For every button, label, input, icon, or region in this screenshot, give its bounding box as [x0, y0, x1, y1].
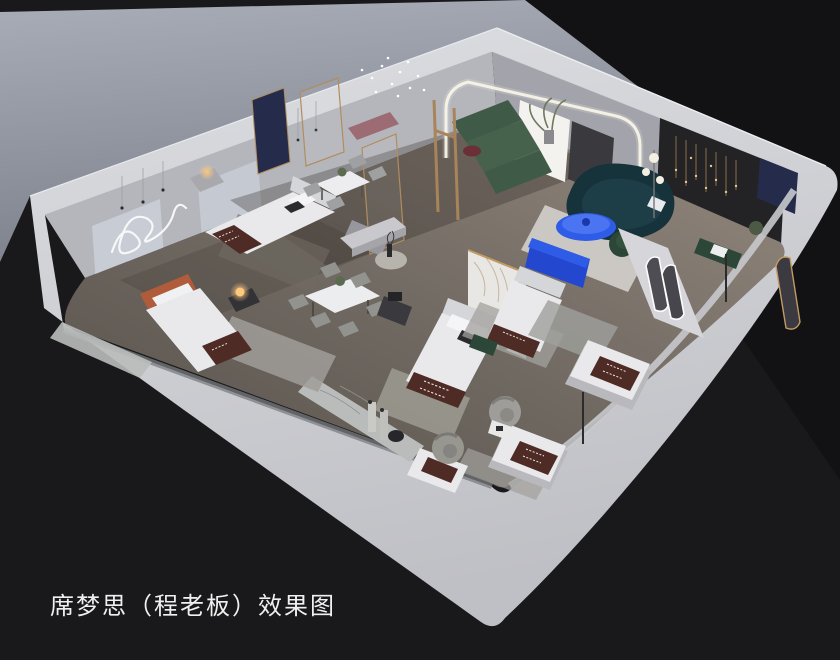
interior-rendering: 席梦思（程老板）效果图: [0, 0, 840, 660]
decor-vase: [387, 244, 392, 257]
caption: 席梦思（程老板）效果图: [50, 592, 336, 620]
partition-navy-panel: [252, 88, 290, 174]
table-plant: [335, 276, 345, 286]
nightstand-lamp-glow: [199, 164, 215, 180]
nightstand-clock: [388, 292, 402, 301]
swivel-chair: [432, 432, 464, 464]
partition-glass-frame: [300, 78, 344, 166]
screenshot-root: 席梦思（程老板）效果图: [0, 0, 840, 660]
red-side-table: [463, 146, 481, 157]
table-plant: [338, 168, 347, 177]
table-decor: [582, 218, 590, 226]
floor-plant: [749, 221, 763, 235]
